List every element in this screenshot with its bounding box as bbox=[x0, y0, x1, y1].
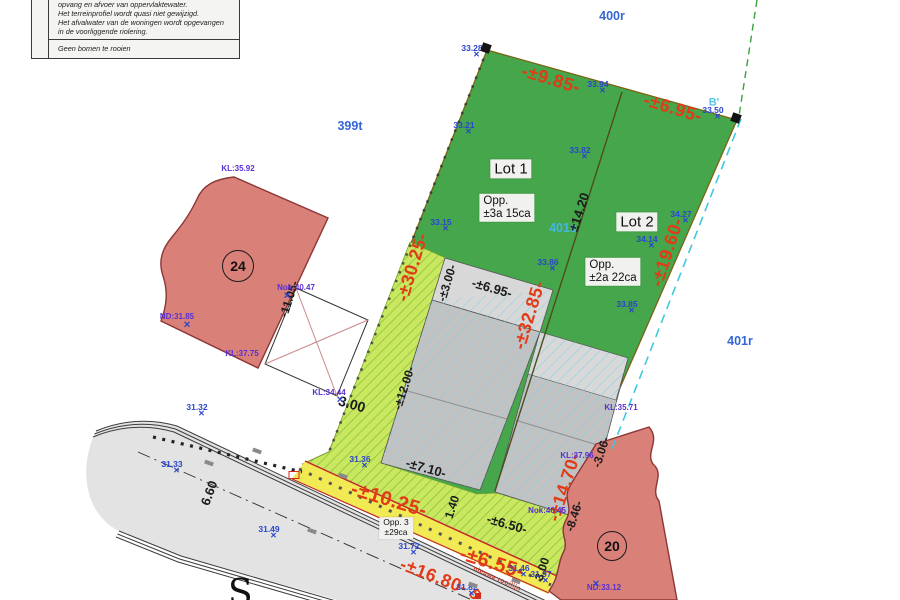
lot2-area-label: Opp. bbox=[589, 259, 636, 272]
level-label: KL:35.92 bbox=[221, 165, 254, 173]
parcel-number-label: 400r bbox=[599, 10, 625, 23]
survey-point-label: 33.86 bbox=[537, 258, 558, 267]
level-label: KL:37.75 bbox=[225, 350, 258, 358]
map-marker bbox=[592, 579, 600, 590]
survey-point-label: 31.36 bbox=[349, 455, 370, 464]
lot3-area-value: ±29ca bbox=[383, 528, 409, 538]
lot1-area-label: Opp. bbox=[483, 195, 530, 208]
survey-point-label: 31.72 bbox=[398, 542, 419, 551]
level-label: KL:35.71 bbox=[604, 404, 637, 412]
note-border-line bbox=[48, 0, 49, 58]
survey-point-label: 31.46 bbox=[508, 564, 529, 573]
survey-point-label: 33.15 bbox=[430, 218, 451, 227]
survey-point-label: 33.50 bbox=[702, 106, 723, 115]
map-marker bbox=[336, 395, 344, 406]
building-20-number: 20 bbox=[597, 531, 627, 561]
survey-point-label: 33.82 bbox=[569, 146, 590, 155]
level-label: KL:37.96 bbox=[560, 452, 593, 460]
boundary-dashed-green bbox=[739, 0, 757, 116]
survey-point-label: 34.27 bbox=[670, 210, 691, 219]
map-marker bbox=[183, 320, 191, 331]
map-marker bbox=[283, 291, 291, 302]
parcel-number-label: 399t bbox=[337, 120, 362, 133]
building-24-number: 24 bbox=[222, 250, 254, 282]
remarks-box: opvang en afvoer van oppervlaktewater. H… bbox=[31, 0, 240, 59]
note-separator bbox=[49, 39, 239, 40]
street-name-letter: S bbox=[228, 573, 253, 600]
survey-point-label: 33.85 bbox=[616, 300, 637, 309]
map-marker bbox=[475, 593, 481, 599]
lot2-area-value: ±2a 22ca bbox=[589, 272, 636, 285]
parcel-number-label: 401r bbox=[727, 335, 753, 348]
lot1-area-box: Opp. ±3a 15ca bbox=[479, 194, 534, 222]
remark-line: Het terreinprofiel wordt quasi niet gewi… bbox=[58, 9, 235, 18]
lot1-area-value: ±3a 15ca bbox=[483, 208, 530, 221]
survey-point-label: 31.49 bbox=[258, 525, 279, 534]
survey-point-label: 31.97 bbox=[530, 570, 551, 579]
remark-line: in de voorliggende riolering. bbox=[58, 27, 235, 36]
survey-point-label: 34.14 bbox=[636, 235, 657, 244]
cadastral-site-plan: opvang en afvoer van oppervlaktewater. H… bbox=[0, 0, 900, 600]
survey-point-label: 33.21 bbox=[453, 121, 474, 130]
survey-point-label: 33.28 bbox=[461, 44, 482, 53]
survey-point-label: 31.32 bbox=[186, 403, 207, 412]
lot1-title: Lot 1 bbox=[490, 159, 531, 178]
remark-line: opvang en afvoer van oppervlaktewater. bbox=[58, 0, 235, 9]
survey-point-label: 31.33 bbox=[161, 460, 182, 469]
remark-line: Het afvalwater van de woningen wordt opg… bbox=[58, 18, 235, 27]
map-marker bbox=[289, 471, 300, 479]
lot3-area-box: Opp. 3 ±29ca bbox=[379, 517, 413, 539]
remarks-text: opvang en afvoer van oppervlaktewater. H… bbox=[58, 0, 235, 36]
lot2-title: Lot 2 bbox=[616, 212, 657, 231]
level-label: Nok:40.45 bbox=[528, 507, 566, 515]
survey-point-label: 33.94 bbox=[587, 80, 608, 89]
lot2-area-box: Opp. ±2a 22ca bbox=[585, 258, 640, 286]
remark-footer: Geen bomen te rooien bbox=[58, 44, 131, 53]
